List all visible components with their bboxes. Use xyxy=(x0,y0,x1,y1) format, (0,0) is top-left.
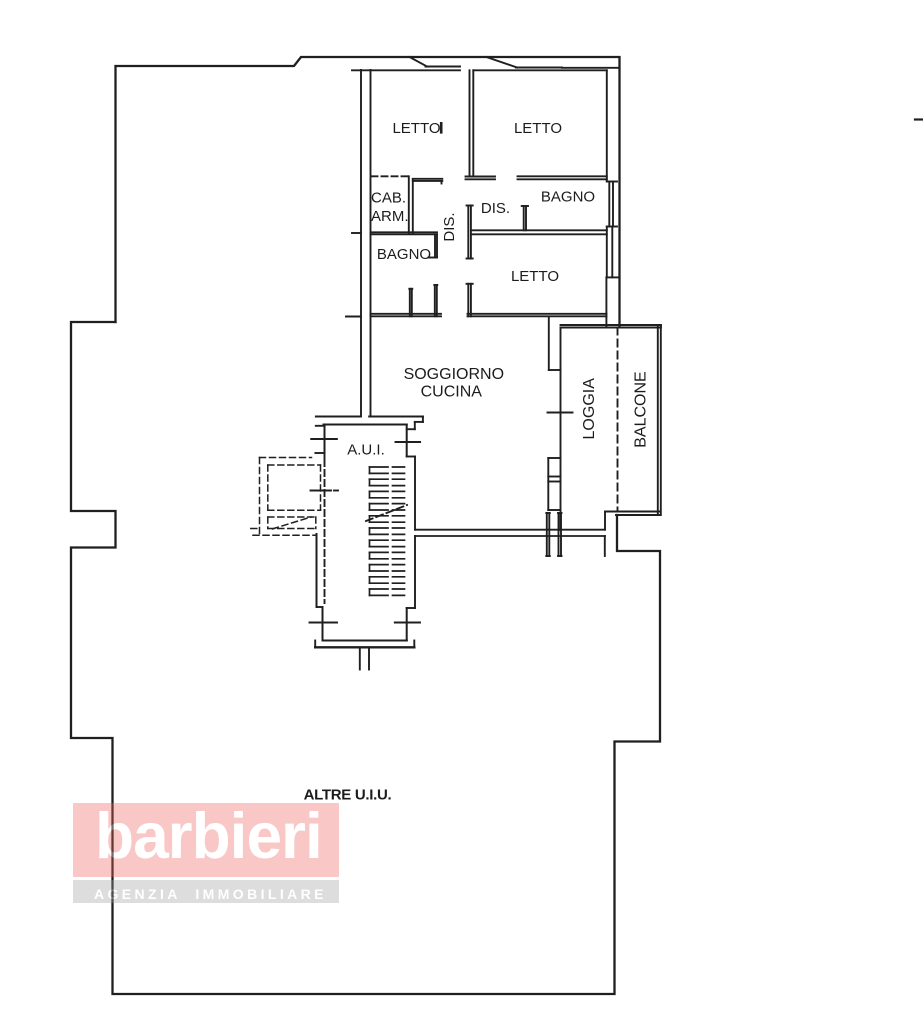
svg-text:LETTO: LETTO xyxy=(511,268,559,285)
svg-text:LOGGIA: LOGGIA xyxy=(581,378,598,440)
svg-text:ARM.: ARM. xyxy=(371,208,409,225)
svg-text:BAGNO: BAGNO xyxy=(541,189,595,206)
svg-text:BALCONE: BALCONE xyxy=(633,371,650,447)
svg-text:A.U.I.: A.U.I. xyxy=(347,442,385,459)
svg-text:SOGGIORNO: SOGGIORNO xyxy=(404,366,504,383)
svg-text:CUCINA: CUCINA xyxy=(421,384,483,401)
svg-text:CAB.: CAB. xyxy=(371,190,406,207)
svg-text:DIS.: DIS. xyxy=(441,212,458,241)
svg-text:BAGNO: BAGNO xyxy=(377,246,431,263)
svg-text:LETTO: LETTO xyxy=(392,120,440,137)
svg-text:LETTO: LETTO xyxy=(514,120,562,137)
svg-text:DIS.: DIS. xyxy=(481,200,510,217)
